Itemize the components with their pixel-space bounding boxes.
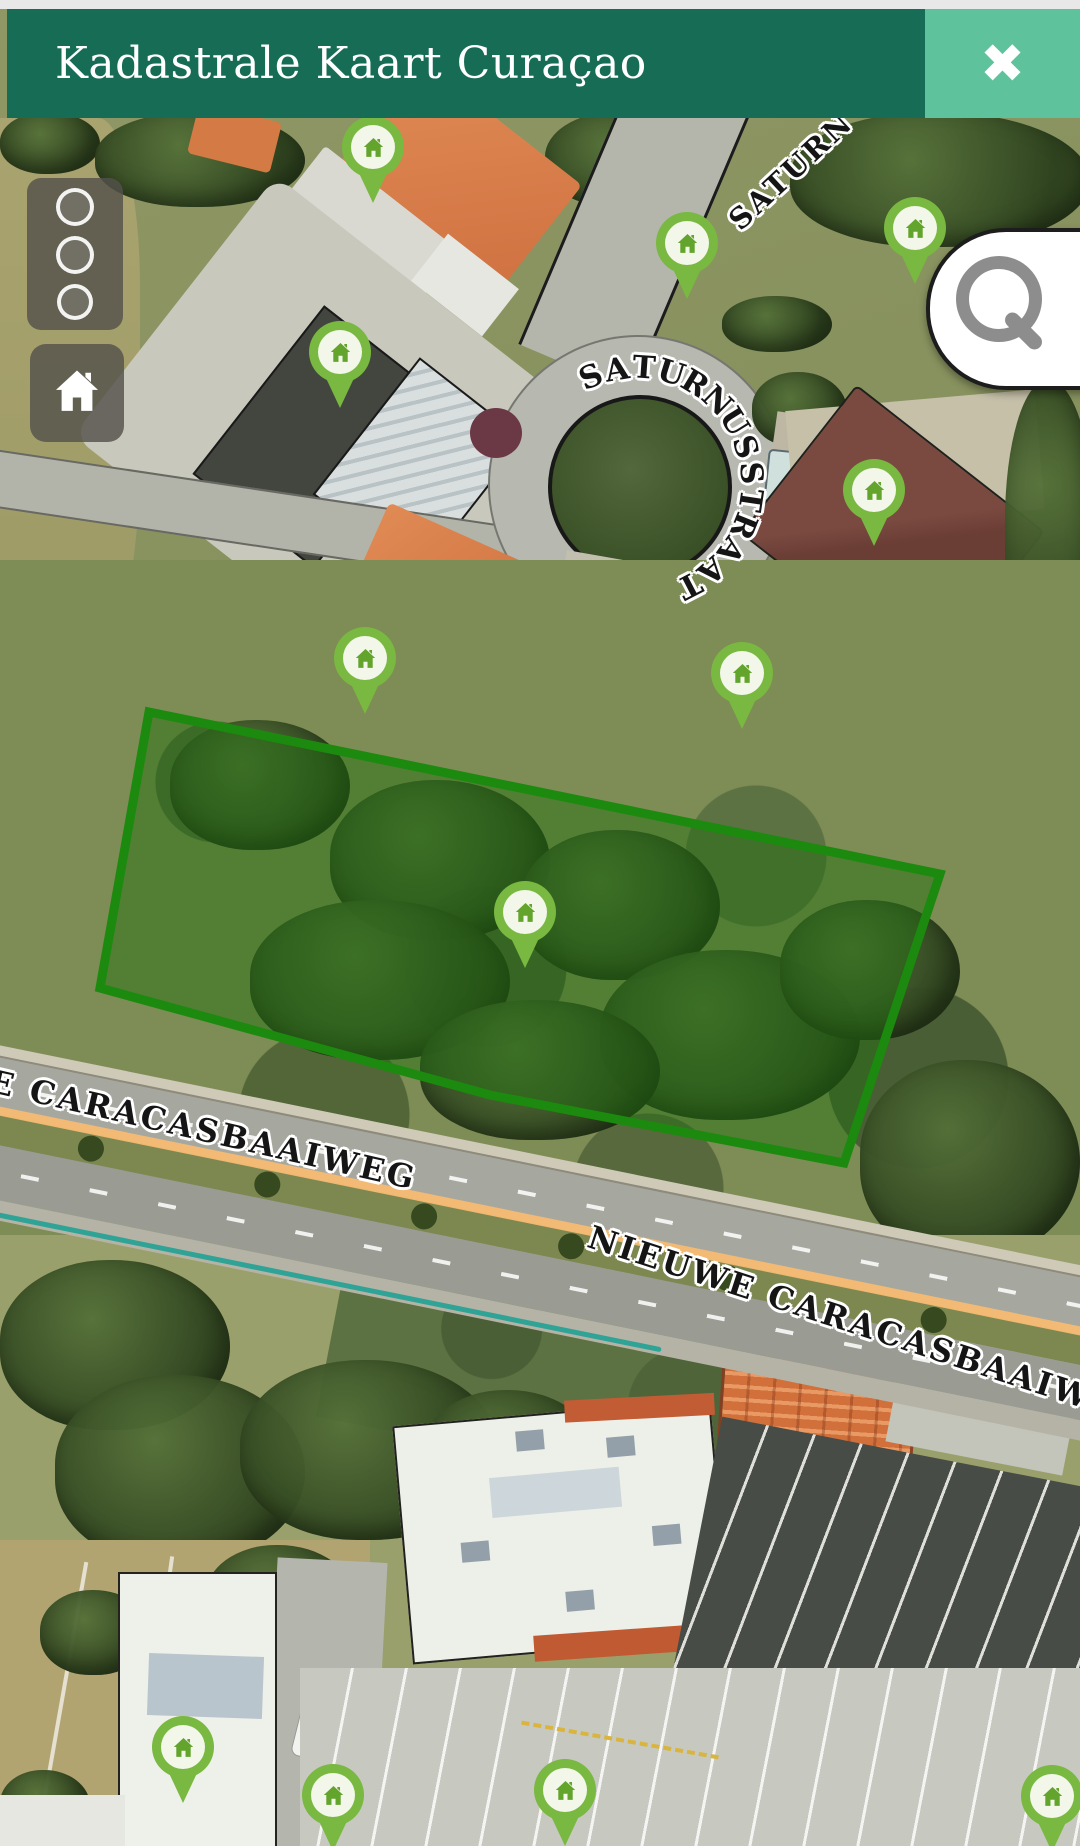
house-marker[interactable]	[302, 1764, 364, 1846]
terrain-feature	[812, 657, 943, 783]
app-header: Kadastrale Kaart Curaçao ✖	[7, 9, 1080, 118]
terrain-feature	[665, 1417, 1080, 1788]
house-marker[interactable]	[711, 642, 773, 732]
marker-head	[843, 459, 905, 521]
house-marker[interactable]	[152, 1716, 214, 1806]
layer-radio-button-1[interactable]	[56, 188, 94, 226]
terrain-feature	[0, 1250, 58, 1482]
terrain-feature	[785, 389, 1045, 530]
terrain-feature	[0, 1260, 230, 1430]
terrain-feature	[1005, 380, 1080, 680]
house-marker[interactable]	[309, 321, 371, 411]
marker-head	[884, 197, 946, 259]
terrain-feature	[316, 1220, 865, 1516]
terrain-feature	[545, 112, 695, 207]
search-button[interactable]	[926, 228, 1080, 390]
terrain-feature	[831, 675, 922, 764]
status-bar-strip	[0, 0, 1080, 9]
house-icon	[665, 221, 709, 265]
terrain-feature	[860, 1060, 1080, 1260]
page-title: Kadastrale Kaart Curaçao	[7, 38, 647, 89]
terrain-feature	[55, 1375, 305, 1565]
house-icon	[720, 651, 764, 695]
terrain-feature	[752, 372, 847, 447]
house-marker[interactable]	[534, 1759, 596, 1846]
house-icon	[161, 1725, 205, 1769]
terrain-feature	[0, 112, 100, 174]
terrain-feature	[0, 1770, 90, 1840]
map-layer-control-panel	[27, 178, 123, 330]
marker-head	[309, 321, 371, 383]
marker-head	[534, 1759, 596, 1821]
house-icon	[852, 468, 896, 512]
house-icon	[543, 1768, 587, 1812]
terrain-feature	[36, 1562, 89, 1838]
marker-head	[656, 212, 718, 274]
terrain-feature	[521, 1721, 719, 1760]
terrain-feature	[663, 1685, 694, 1744]
house-icon	[351, 125, 395, 169]
house-icon	[1030, 1774, 1074, 1818]
terrain-feature	[0, 449, 571, 592]
house-icon	[343, 636, 387, 680]
house-icon	[893, 206, 937, 250]
terrain-feature	[95, 112, 305, 207]
marker-head	[302, 1764, 364, 1826]
terrain-feature	[40, 1590, 150, 1675]
terrain-feature	[300, 1668, 1080, 1846]
terrain-feature	[930, 640, 1080, 840]
street-label-letter: S	[732, 460, 770, 485]
marker-head	[342, 116, 404, 178]
terrain-feature	[420, 1390, 600, 1530]
map-canvas[interactable]: SATURNUSSTRAATSATURNE CARACASBAAIWEGNIEU…	[0, 0, 1080, 1846]
terrain-feature	[701, 1352, 913, 1679]
marker-head	[152, 1716, 214, 1778]
house-icon	[503, 890, 547, 934]
layer-radio-button-3[interactable]	[57, 284, 93, 320]
terrain-feature	[722, 296, 832, 352]
marker-head	[711, 642, 773, 704]
house-icon	[311, 1773, 355, 1817]
house-marker[interactable]	[656, 212, 718, 302]
layer-radio-button-2[interactable]	[56, 236, 94, 274]
terrain-feature	[701, 1352, 919, 1686]
house-marker[interactable]	[1021, 1765, 1080, 1846]
terrain-feature	[470, 408, 522, 458]
house-marker[interactable]	[334, 627, 396, 717]
marker-head	[1021, 1765, 1080, 1827]
terrain-feature	[240, 1360, 500, 1540]
close-button[interactable]: ✖	[925, 9, 1080, 118]
terrain-feature	[0, 1795, 125, 1846]
terrain-feature	[147, 1653, 264, 1719]
marker-head	[334, 627, 396, 689]
home-icon	[49, 363, 105, 423]
terrain-feature	[73, 176, 607, 695]
terrain-feature	[555, 550, 685, 640]
marker-head	[494, 881, 556, 943]
terrain-feature	[580, 584, 841, 767]
house-marker[interactable]	[342, 116, 404, 206]
terrain-feature	[290, 1700, 342, 1764]
terrain-feature	[205, 1545, 355, 1655]
house-marker[interactable]	[494, 881, 556, 971]
terrain-feature	[392, 1399, 731, 1665]
home-extent-button[interactable]	[30, 344, 124, 442]
terrain-feature	[411, 234, 519, 337]
house-marker[interactable]	[843, 459, 905, 549]
close-icon: ✖	[980, 37, 1025, 91]
house-icon	[318, 330, 362, 374]
